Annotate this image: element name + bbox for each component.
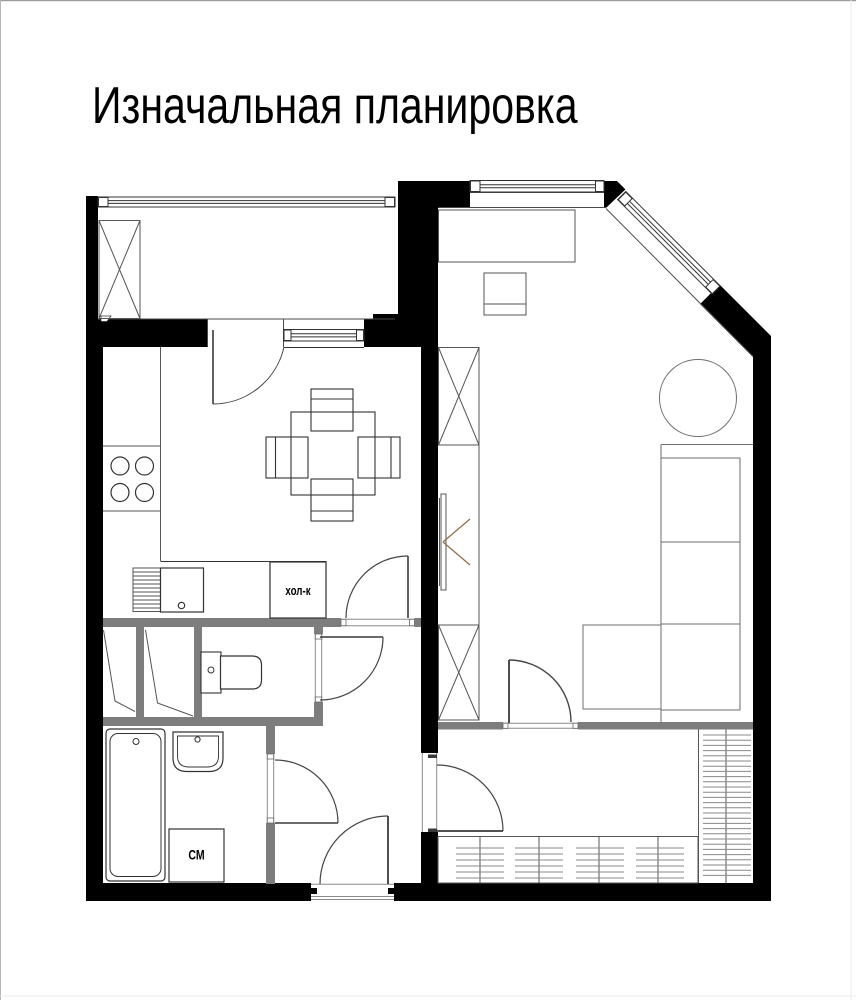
svg-text:Изначальная планировка: Изначальная планировка [92, 76, 578, 134]
svg-text:СМ: СМ [188, 847, 204, 863]
svg-text:хол-к: хол-к [285, 585, 311, 598]
